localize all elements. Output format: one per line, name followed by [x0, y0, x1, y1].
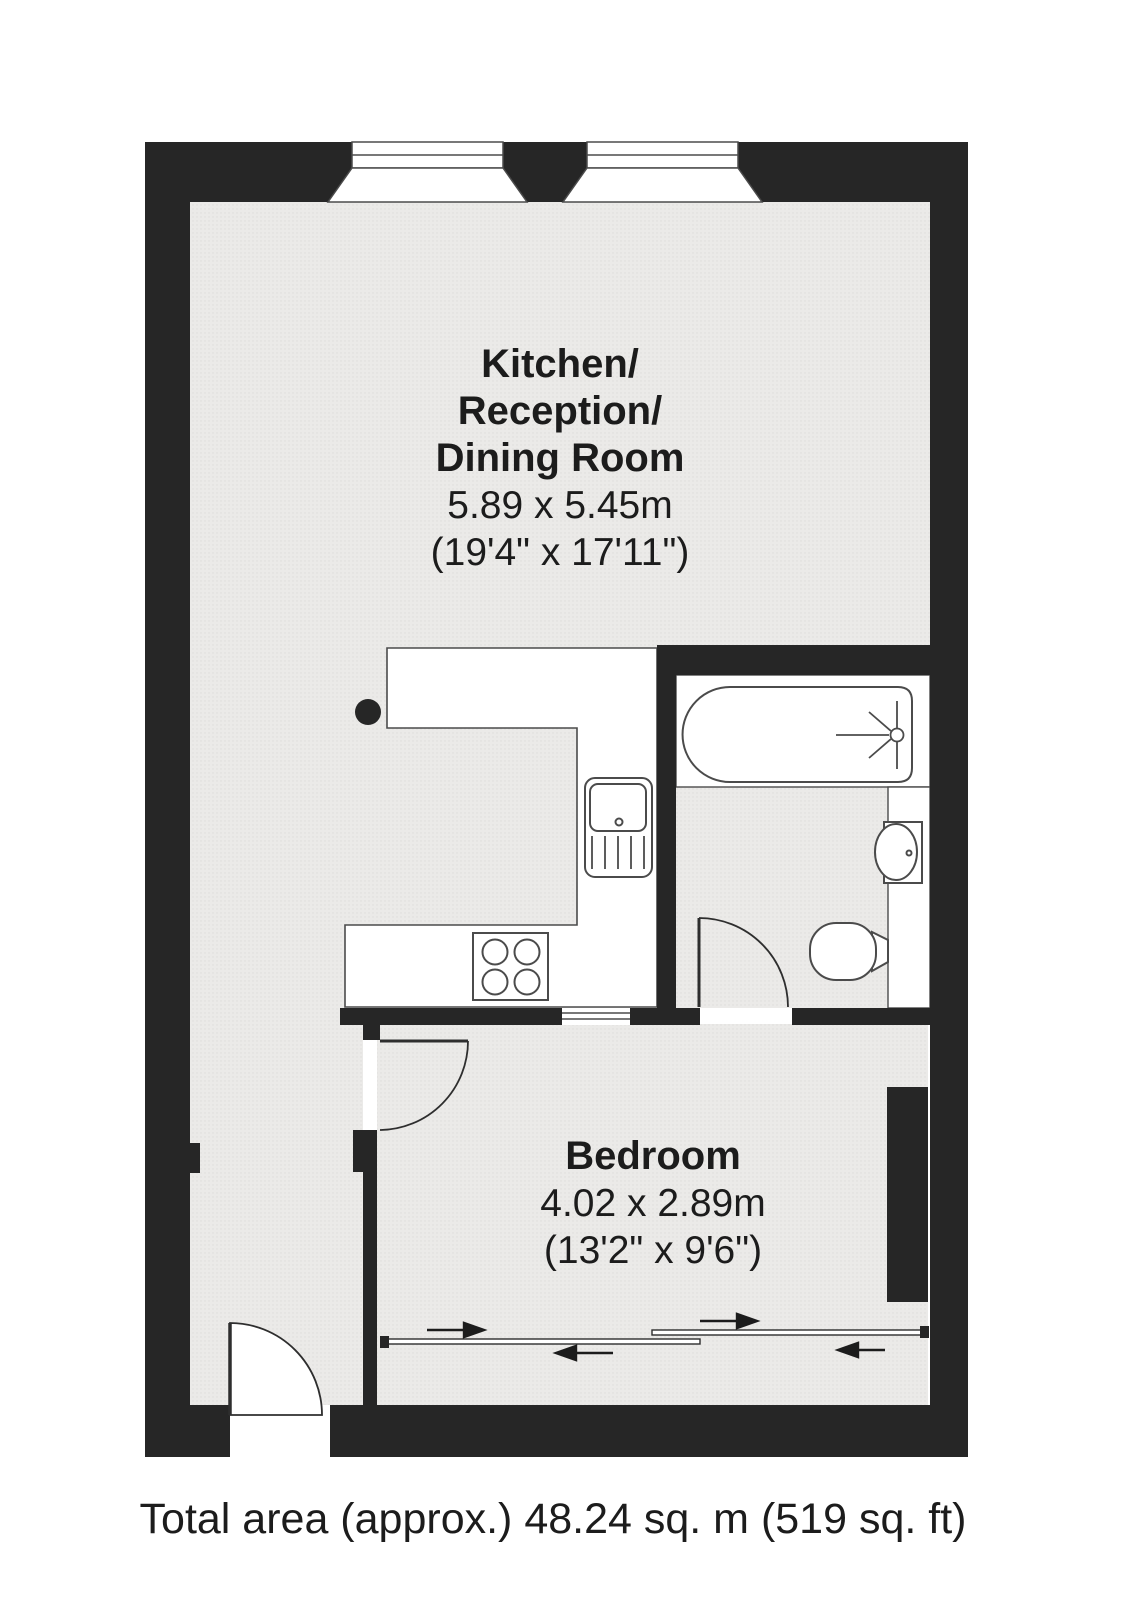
- structural-column: [355, 699, 381, 725]
- floor-plan: [0, 0, 1130, 1600]
- wall-left-nib: [190, 1143, 200, 1173]
- bathtub: [683, 687, 912, 782]
- bay-window-left: [328, 142, 527, 202]
- bedroom-size-imperial: (13'2" x 9'6"): [540, 1227, 765, 1274]
- kitchen-size-imperial: (19'4" x 17'11"): [431, 529, 690, 576]
- wall-bathroom-bottom-left: [630, 1008, 700, 1025]
- floor-plan-page: Kitchen/ Reception/ Dining Room 5.89 x 5…: [0, 0, 1130, 1600]
- wall-left: [145, 142, 190, 1457]
- bedroom-size-metric: 4.02 x 2.89m: [540, 1180, 765, 1227]
- washbasin: [875, 822, 922, 883]
- serving-hatch-window: [562, 1008, 630, 1025]
- kitchen-name-line1: Kitchen/: [431, 341, 690, 388]
- hob-4-rings: [473, 933, 548, 1000]
- total-area-text: Total area (approx.) 48.24 sq. m (519 sq…: [140, 1495, 967, 1544]
- kitchen-name-line3: Dining Room: [431, 435, 690, 482]
- wall-right: [930, 142, 968, 1457]
- kitchen-sink: [585, 778, 652, 877]
- wall-kitchen-bathroom-h: [657, 645, 930, 675]
- wall-door-jamb: [363, 1022, 380, 1040]
- bay-window-right: [563, 142, 762, 202]
- kitchen-size-metric: 5.89 x 5.45m: [431, 482, 690, 529]
- bathroom-doorway-opening: [700, 1008, 792, 1024]
- wall-hall-bedroom-nib: [353, 1130, 377, 1172]
- bedroom-label: Bedroom 4.02 x 2.89m (13'2" x 9'6"): [540, 1133, 765, 1274]
- wall-bathroom-bottom-right: [792, 1008, 930, 1025]
- kitchen-label: Kitchen/ Reception/ Dining Room 5.89 x 5…: [431, 341, 690, 576]
- wall-kitchen-bathroom-v: [657, 645, 676, 1008]
- kitchen-name-line2: Reception/: [431, 388, 690, 435]
- bedroom-name: Bedroom: [540, 1133, 765, 1180]
- chimney-breast: [887, 1087, 928, 1302]
- wall-top: [145, 142, 968, 202]
